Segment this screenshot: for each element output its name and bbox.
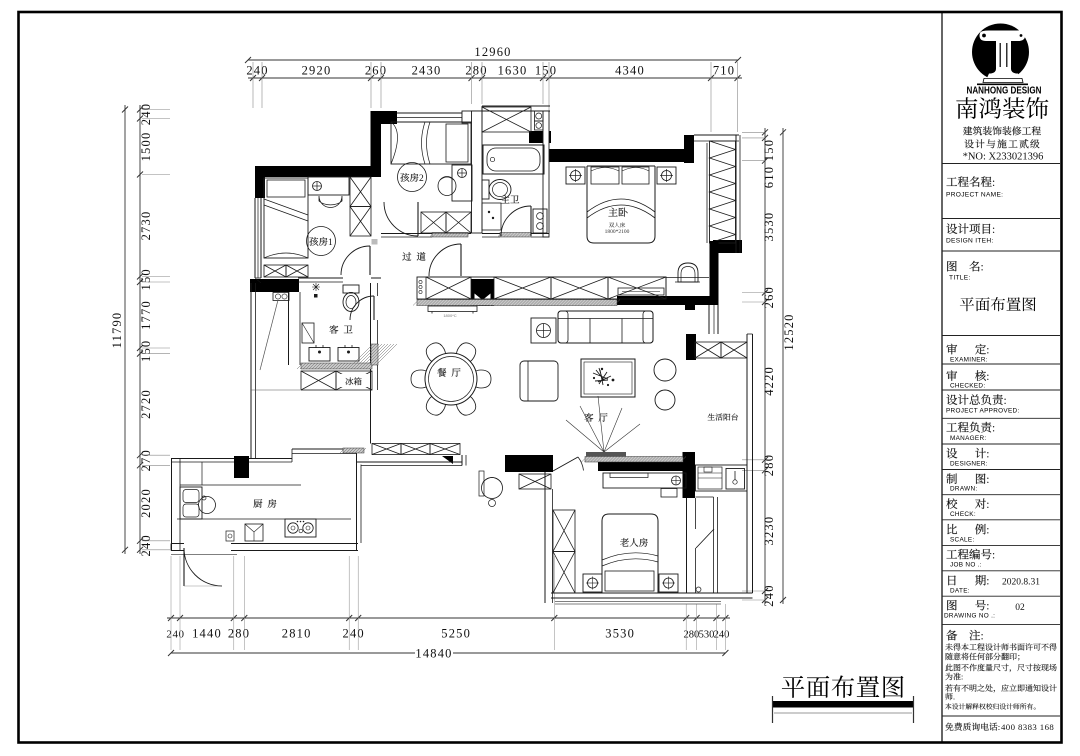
svg-text:1770: 1770 [139,300,153,330]
svg-text:150: 150 [535,64,557,78]
svg-text:2430: 2430 [412,64,442,78]
svg-text:4220: 4220 [762,366,776,396]
svg-text:240: 240 [246,64,268,78]
svg-text:PROJECT APPROVED:: PROJECT APPROVED: [946,408,1020,415]
svg-text:240: 240 [714,630,730,641]
svg-text:TITLE:: TITLE: [949,275,971,282]
svg-text:3230: 3230 [762,516,776,546]
svg-text:11790: 11790 [110,312,124,349]
svg-text::: : [992,177,995,189]
svg-text:150: 150 [762,139,776,161]
svg-text:2730: 2730 [139,211,153,241]
svg-text:2020: 2020 [139,488,153,518]
svg-text:14840: 14840 [415,647,452,661]
svg-text::: : [986,601,989,613]
svg-text::: : [986,576,989,588]
svg-text:DRAWING NO .:: DRAWING NO .: [944,613,995,620]
svg-text:1800*2100: 1800*2100 [605,229,630,235]
svg-text:280: 280 [465,64,487,78]
svg-text::: : [1004,395,1007,407]
svg-text:710: 710 [713,64,735,78]
svg-text:CHECKED:: CHECKED: [950,383,985,390]
svg-text:1630: 1630 [498,64,528,78]
svg-text::: : [986,345,989,357]
svg-text::: : [986,525,989,537]
svg-text:12520: 12520 [782,313,796,350]
svg-text:610: 610 [762,166,776,188]
svg-text:270: 270 [139,449,153,471]
svg-text:2: 2 [419,174,424,184]
svg-text:280: 280 [762,454,776,476]
svg-text:2720: 2720 [139,389,153,419]
svg-text::: : [986,371,989,383]
svg-text:2920: 2920 [302,64,332,78]
svg-text:240: 240 [139,534,153,556]
svg-text:5250: 5250 [441,627,471,641]
svg-text::: : [998,722,1000,732]
svg-text:CHECK:: CHECK: [950,511,976,518]
svg-text:280: 280 [684,630,700,641]
svg-text:DRAWN:: DRAWN: [950,486,977,493]
svg-text::: : [992,423,995,435]
svg-text::: : [961,673,963,682]
svg-text:240: 240 [166,629,184,641]
svg-text:4340: 4340 [615,64,645,78]
svg-text:NANHONG DESIGN: NANHONG DESIGN [967,85,1042,97]
svg-text:DESIGNER:: DESIGNER: [950,461,988,468]
svg-text::: : [986,449,989,461]
svg-text:*NO: X233021396: *NO: X233021396 [963,152,1044,163]
svg-text:280: 280 [228,627,250,641]
svg-text:240: 240 [139,103,153,125]
svg-text:2810: 2810 [282,627,312,641]
svg-text:260: 260 [762,286,776,308]
svg-text:3530: 3530 [762,212,776,242]
svg-text:02: 02 [1015,603,1025,613]
svg-text::: : [986,499,989,511]
svg-text:PROJECT NAME:: PROJECT NAME: [946,192,1003,199]
svg-text:400 8383 168: 400 8383 168 [1001,722,1054,732]
svg-text:SCALE:: SCALE: [950,537,975,544]
svg-text:150: 150 [139,340,153,362]
svg-text:260: 260 [365,64,387,78]
svg-text:1440: 1440 [192,627,222,641]
svg-text:.: . [953,693,955,702]
svg-text:3530: 3530 [605,627,635,641]
svg-text:DESIGN ITEH:: DESIGN ITEH: [946,238,994,245]
svg-text:1800*C: 1800*C [443,313,456,318]
svg-text:MANAGER:: MANAGER: [950,435,987,442]
svg-text:12960: 12960 [474,45,511,59]
svg-text:2020.8.31: 2020.8.31 [1002,578,1040,588]
svg-text:530: 530 [699,630,715,641]
svg-text::: : [992,224,995,236]
svg-text:DATE:: DATE: [950,588,970,595]
svg-text::: : [992,550,995,562]
svg-text:JOB NO .:: JOB NO .: [950,562,982,569]
svg-text:240: 240 [343,627,365,641]
svg-text:1: 1 [328,238,333,248]
svg-text::: : [986,474,989,486]
svg-text:1500: 1500 [139,132,153,162]
svg-text:EXAMINER:: EXAMINER: [950,357,988,364]
svg-text::: : [981,262,984,274]
svg-text:150: 150 [139,268,153,290]
svg-text:240: 240 [762,584,776,606]
svg-text::: : [981,631,984,643]
